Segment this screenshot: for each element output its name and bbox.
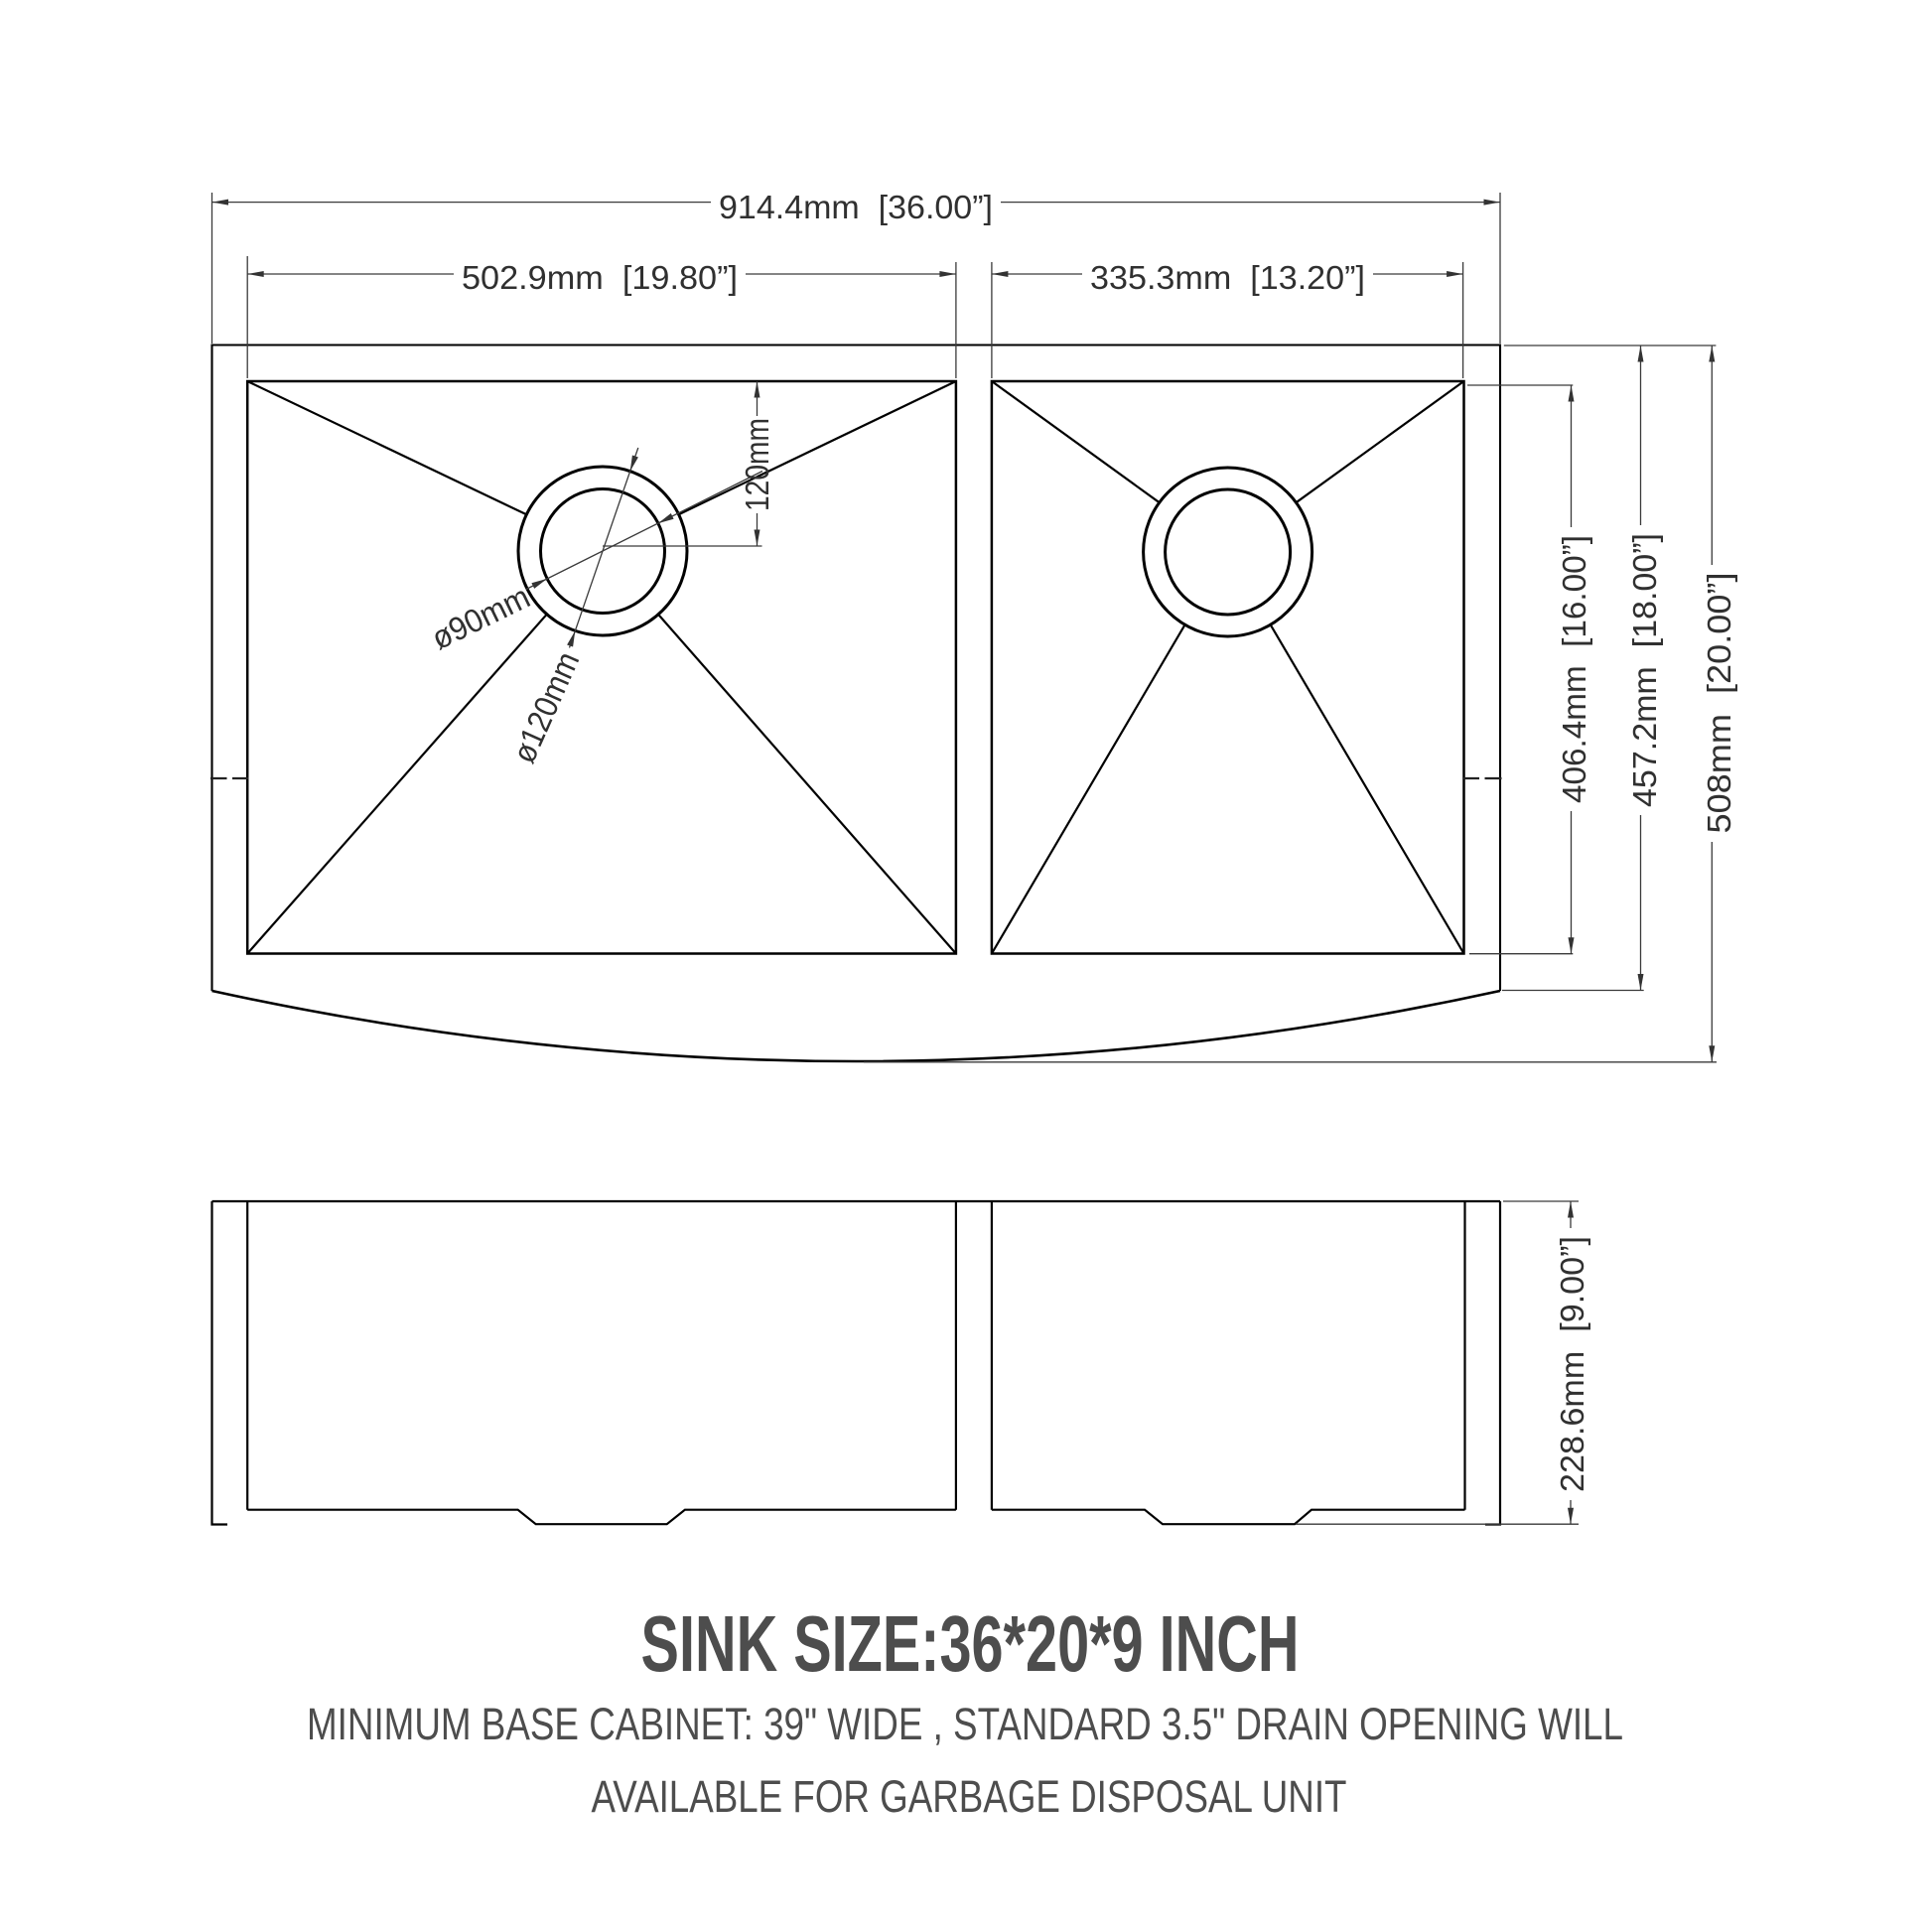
- svg-text:MINIMUM BASE CABINET: 39" WIDE: MINIMUM BASE CABINET: 39" WIDE , STANDAR…: [307, 1699, 1623, 1749]
- svg-text:406.4mm [16.00”]: 406.4mm [16.00”]: [1556, 535, 1592, 803]
- svg-text:457.2mm [18.00”]: 457.2mm [18.00”]: [1626, 533, 1663, 807]
- svg-text:120mm: 120mm: [739, 418, 775, 511]
- svg-text:914.4mm [36.00”]: 914.4mm [36.00”]: [719, 189, 993, 225]
- svg-text:ø120mm: ø120mm: [505, 646, 587, 768]
- svg-text:228.6mm [9.00”]: 228.6mm [9.00”]: [1554, 1236, 1590, 1492]
- svg-text:335.3mm [13.20”]: 335.3mm [13.20”]: [1090, 259, 1365, 296]
- svg-text:AVAILABLE FOR GARBAGE DISPOSAL: AVAILABLE FOR GARBAGE DISPOSAL UNIT: [592, 1771, 1347, 1822]
- svg-text:502.9mm [19.80”]: 502.9mm [19.80”]: [462, 259, 738, 296]
- svg-text:508mm [20.00”]: 508mm [20.00”]: [1701, 573, 1737, 834]
- svg-text:SINK SIZE:36*20*9 INCH: SINK SIZE:36*20*9 INCH: [641, 1599, 1300, 1688]
